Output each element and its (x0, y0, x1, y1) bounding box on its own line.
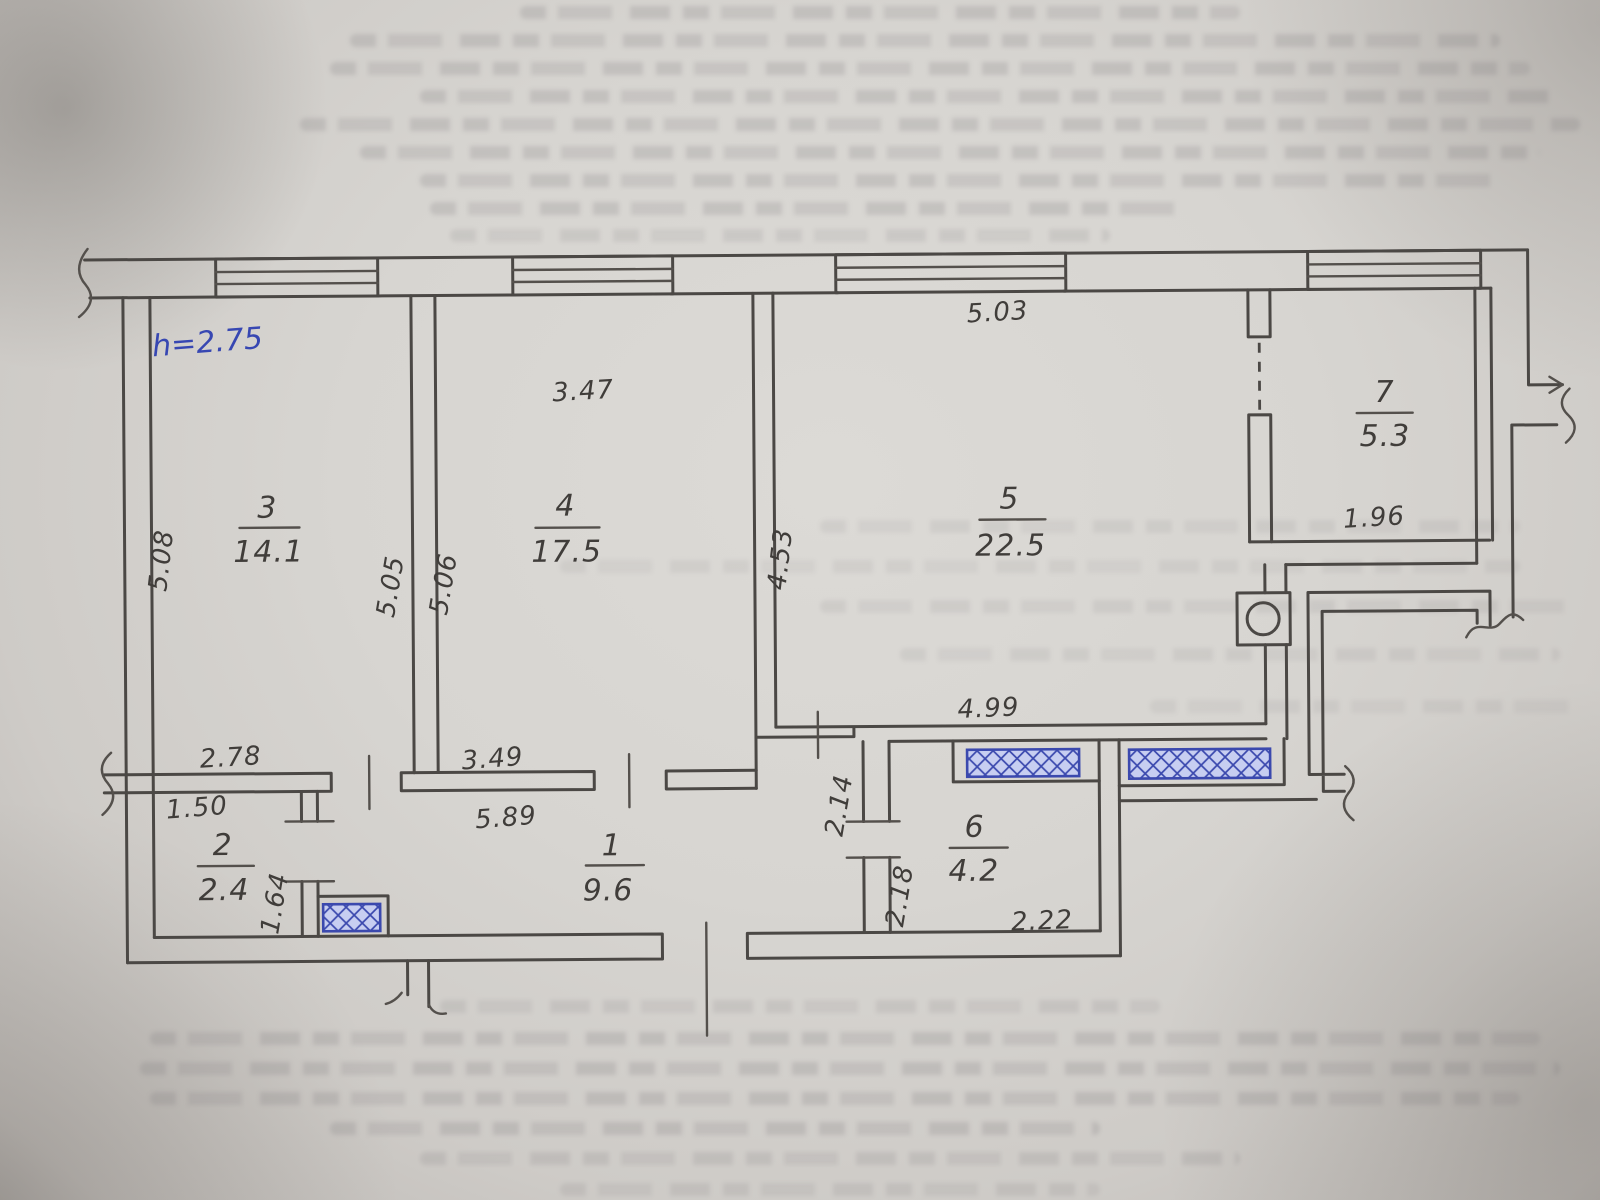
room-4-label: 4 17.5 (531, 488, 602, 569)
room-4-area: 17.5 (531, 534, 602, 569)
window-room4 (513, 256, 673, 295)
floor-plan-drawing: h=2.75 3 14.1 4 17.5 5 22.5 7 (0, 0, 1600, 1200)
room-4-number: 4 (555, 489, 575, 524)
room-1-number: 1 (602, 828, 622, 863)
dim-room3-left: 5.08 (143, 528, 180, 593)
dim-hall-lower: 2.18 (880, 863, 920, 929)
dim-room2-top: 1.50 (165, 791, 229, 826)
room-1-label: 1 9.6 (582, 828, 644, 908)
dim-room4-top: 3.47 (551, 375, 615, 409)
interior-walls (101, 288, 1496, 1009)
exterior-walls (85, 250, 1567, 963)
break-entry-opening (1562, 389, 1575, 443)
riser-fixture (1237, 593, 1290, 645)
dim-room4-bottom: 3.49 (461, 742, 525, 777)
dim-room3-right: 5.05 (371, 553, 411, 619)
room-7-area: 5.3 (1359, 419, 1410, 454)
door-jambs-room2 (286, 821, 334, 881)
window-room3 (216, 258, 378, 297)
height-note: h=2.75 (151, 321, 264, 364)
room-3-area: 14.1 (233, 534, 304, 569)
dim-room7-width: 1.96 (1342, 501, 1406, 535)
break-bottom-stub (386, 992, 446, 1014)
room-1-area: 9.6 (583, 873, 634, 908)
window-room5 (836, 253, 1066, 293)
room-2-area: 2.4 (199, 873, 250, 908)
room-7-number: 7 (1374, 375, 1394, 410)
room-3-label: 3 14.1 (233, 490, 304, 569)
dim-room6-bottom: 2.22 (1010, 905, 1073, 938)
entrance-door-tick (706, 923, 707, 1036)
dim-room2-right: 1.64 (255, 870, 295, 936)
door-jambs-room6 (847, 821, 900, 857)
room-5-label: 5 22.5 (975, 481, 1046, 563)
room-5-area: 22.5 (975, 528, 1046, 563)
floor-plan-photo: h=2.75 3 14.1 4 17.5 5 22.5 7 (0, 0, 1600, 1200)
room-5-number: 5 (999, 481, 1019, 516)
break-left-middle (102, 753, 114, 815)
dim-room5-top: 5.03 (966, 296, 1030, 330)
room-6-number: 6 (964, 810, 984, 845)
dim-corridor: 5.89 (474, 801, 538, 836)
break-right-lower (1466, 614, 1523, 637)
dim-room3-bottom: 2.78 (199, 741, 263, 775)
dim-hall-upper: 2.14 (820, 772, 860, 838)
room-3-number: 3 (257, 491, 277, 526)
room-2-number: 2 (213, 828, 233, 863)
dim-room5-left: 4.53 (762, 527, 799, 592)
room-7-label: 7 5.3 (1356, 375, 1413, 454)
pipe-riser-icon (1247, 603, 1279, 635)
dim-room4-left: 5.06 (424, 551, 464, 617)
room-6-label: 6 4.2 (948, 810, 1008, 889)
room-6-area: 4.2 (948, 854, 999, 889)
dim-hall-width: 4.99 (957, 692, 1020, 725)
room-2-label: 2 2.4 (198, 828, 255, 908)
window-room7 (1308, 250, 1481, 289)
